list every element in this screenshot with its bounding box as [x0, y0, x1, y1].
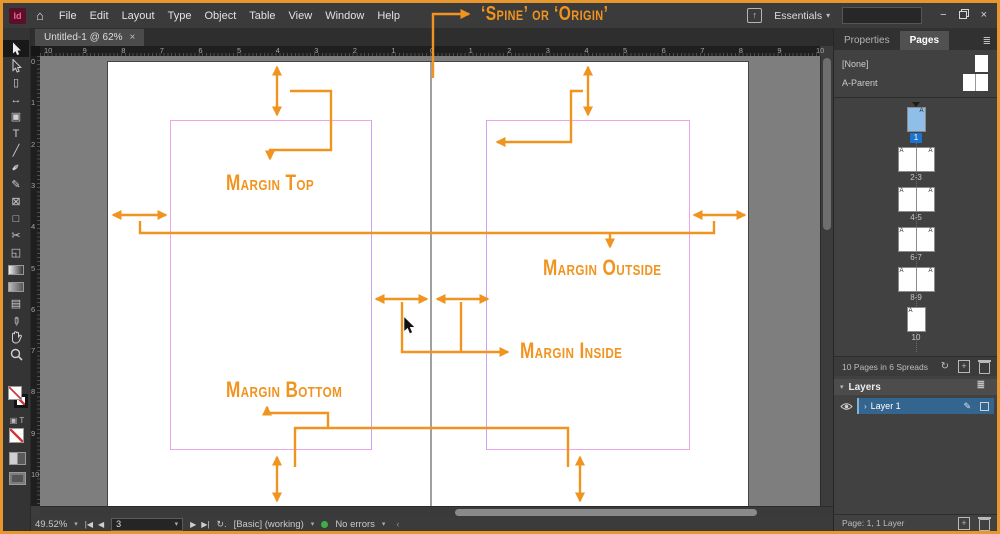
right-inside-column-guide [486, 120, 487, 450]
h-ruler-number: 2 [507, 46, 511, 55]
h-ruler-number: 7 [160, 46, 164, 55]
layer-row[interactable]: › Layer 1 ✎ [834, 397, 998, 415]
panel-dock: Properties Pages ≣ [None] A-Parent A1AA2… [833, 28, 998, 531]
ruler-origin-corner[interactable] [30, 46, 40, 56]
zoom-tool[interactable] [3, 346, 29, 363]
page-label: 1 [910, 133, 922, 143]
new-page-icon[interactable]: + [958, 517, 970, 530]
horizontal-scrollbar-thumb[interactable] [455, 509, 757, 516]
menu-table[interactable]: Table [249, 10, 275, 22]
document-tab[interactable]: Untitled-1 @ 62% × [35, 29, 144, 46]
menu-object[interactable]: Object [204, 10, 236, 22]
h-ruler-number: 8 [739, 46, 743, 55]
apply-color-button[interactable] [9, 452, 26, 465]
free-transform-tool[interactable]: ◱ [3, 244, 29, 261]
layers-panel-header[interactable]: ▾ Layers ≣ [834, 379, 998, 395]
apply-none-swatch[interactable] [9, 428, 24, 443]
h-ruler-number: 1 [391, 46, 395, 55]
status-bar: 49.52% ▾ |◀ ◀ 3 ▾ ▶ ▶| ↻. [Basic] (worki… [3, 517, 833, 531]
indesign-logo-icon[interactable]: Id [9, 8, 26, 24]
panel-bottom-bar: Page: 1, 1 Layer + [834, 514, 998, 531]
vertical-scrollbar-thumb[interactable] [823, 58, 831, 230]
page-thumbnail: A [899, 148, 916, 171]
formatting-affects-toggle[interactable]: ▣T [6, 416, 28, 425]
h-ruler-number: 1 [469, 46, 473, 55]
layer-name: Layer 1 [871, 401, 901, 411]
parent-indicator-icon [912, 102, 920, 107]
close-tab-icon[interactable]: × [130, 32, 136, 43]
h-ruler-number: 5 [623, 46, 627, 55]
rectangle-frame-tool[interactable]: ⊠ [3, 193, 29, 210]
pages-panel-footer: 10 Pages in 6 Spreads ↻ + [834, 356, 998, 376]
page-thumbnail: A [917, 188, 934, 211]
menu-bar: Id ⌂ FileEditLayoutTypeObjectTableViewWi… [3, 3, 997, 28]
chevron-down-icon: ▾ [826, 11, 830, 20]
layer-selected[interactable]: › Layer 1 ✎ [857, 398, 994, 414]
panel-tab-bar: Properties Pages ≣ [834, 28, 998, 50]
v-ruler-number: 8 [31, 387, 35, 396]
workspace-switcher[interactable]: Essentials ▾ [774, 10, 830, 22]
container-icon: ▣ [10, 416, 18, 425]
share-icon[interactable]: ↑ [747, 8, 762, 23]
eye-icon[interactable] [840, 402, 853, 411]
gradient-feather-tool[interactable] [3, 278, 29, 295]
h-ruler-number: 4 [276, 46, 280, 55]
page-number-value: 3 [116, 519, 121, 529]
vertical-ruler[interactable]: 012345678910 [30, 56, 40, 506]
tab-properties[interactable]: Properties [834, 31, 900, 50]
delete-page-icon[interactable] [979, 362, 990, 374]
document-tab-title: Untitled-1 @ 62% [44, 32, 123, 43]
v-ruler-number: 1 [31, 98, 35, 107]
minimize-button[interactable]: − [940, 10, 946, 21]
spread-icon [963, 74, 988, 91]
layers-panel-title: Layers [849, 382, 881, 393]
pages-panel-page-6-7[interactable]: AA6-7 [899, 228, 934, 263]
panel-menu-icon[interactable]: ≣ [983, 36, 991, 50]
h-ruler-number: 6 [662, 46, 666, 55]
h-ruler-number: 2 [353, 46, 357, 55]
page-label: 8-9 [910, 293, 922, 303]
pages-list: A1AA2-3AA4-5AA6-7AA8-9A10 [834, 98, 998, 356]
previous-page-button[interactable]: ◀ [98, 520, 104, 529]
page-thumbnail: A [908, 108, 925, 131]
menu-type[interactable]: Type [168, 10, 192, 22]
v-ruler-number: 0 [31, 57, 35, 66]
type-tool[interactable]: T [3, 125, 29, 142]
expand-layer-icon[interactable]: › [864, 402, 867, 411]
document-canvas[interactable] [40, 56, 820, 506]
screen-mode-button[interactable] [9, 472, 26, 485]
preflight-status-chevron-icon[interactable]: ▾ [382, 520, 386, 528]
direct-selection-tool[interactable] [3, 57, 29, 74]
page-label: 2-3 [910, 173, 922, 183]
last-page-button[interactable]: ▶| [201, 520, 209, 529]
h-ruler-number: 6 [198, 46, 202, 55]
h-ruler-number: 5 [237, 46, 241, 55]
restore-button[interactable] [959, 9, 969, 22]
parent-pages-section: [None] A-Parent [834, 50, 998, 98]
page-info-label: Page: 1, 1 Layer [842, 518, 904, 528]
left-page-margin-guides [170, 120, 372, 450]
zoom-level[interactable]: 49.52% [35, 519, 67, 530]
preflight-status[interactable]: No errors [335, 519, 375, 530]
next-page-button[interactable]: ▶ [190, 520, 196, 529]
layers-menu-icon[interactable]: ≣ [977, 380, 985, 394]
pages-count-label: 10 Pages in 6 Spreads [842, 362, 928, 372]
pages-panel-page-8-9[interactable]: AA8-9 [899, 268, 934, 303]
text-icon: T [19, 416, 24, 425]
gap-tool[interactable]: ↔ [3, 91, 29, 108]
home-icon[interactable]: ⌂ [36, 9, 44, 22]
page-thumbnail: A [917, 148, 934, 171]
page-label: 10 [912, 333, 921, 343]
v-ruler-number: 4 [31, 222, 35, 231]
left-inside-column-guide [371, 120, 372, 450]
vertical-scrollbar[interactable] [820, 56, 834, 506]
close-button[interactable]: × [981, 10, 987, 21]
v-ruler-number: 7 [31, 346, 35, 355]
horizontal-ruler[interactable]: 10987654321012345678910 [40, 46, 820, 56]
scroll-left-icon[interactable]: ‹ [396, 519, 399, 530]
menu-items: FileEditLayoutTypeObjectTableViewWindowH… [59, 10, 400, 22]
tab-pages[interactable]: Pages [900, 31, 949, 50]
delete-icon[interactable] [979, 519, 990, 531]
edit-page-size-icon[interactable]: ↻ [941, 361, 949, 372]
menu-help[interactable]: Help [377, 10, 400, 22]
pages-panel-page-1[interactable]: A1 [908, 102, 925, 143]
no-errors-indicator-icon [321, 521, 328, 528]
v-ruler-number: 2 [31, 140, 35, 149]
spine-line [430, 62, 432, 506]
preflight-profile[interactable]: [Basic] (working) [234, 519, 304, 530]
menu-file[interactable]: File [59, 10, 77, 22]
h-ruler-number: 7 [700, 46, 704, 55]
v-ruler-number: 5 [31, 264, 35, 273]
v-ruler-number: 10 [31, 470, 39, 479]
h-ruler-number: 8 [121, 46, 125, 55]
h-ruler-number: 10 [816, 46, 824, 55]
page-thumbnail: A [917, 268, 934, 291]
rectangle-tool[interactable]: □ [3, 210, 29, 227]
new-spread-icon[interactable]: + [958, 360, 970, 373]
search-input[interactable] [842, 7, 922, 24]
fill-swatch-none[interactable] [8, 386, 22, 400]
h-ruler-number: 10 [44, 46, 52, 55]
h-ruler-number: 3 [314, 46, 318, 55]
menu-edit[interactable]: Edit [90, 10, 109, 22]
h-ruler-number: 9 [83, 46, 87, 55]
tools-panel: ▯↔▣T╱✒✎⊠□✂◱▤✐ ▣T [3, 28, 31, 531]
restore-icon [959, 9, 969, 19]
page-label: 6-7 [910, 253, 922, 263]
h-ruler-number: 3 [546, 46, 550, 55]
menu-bar-right: ↑ Essentials ▾ − × [747, 7, 987, 24]
parent-page-none[interactable]: [None] [834, 54, 998, 73]
collapse-icon[interactable]: ▾ [840, 383, 844, 391]
preflight-profile-chevron-icon[interactable]: ▾ [311, 520, 315, 528]
parent-page-label: [None] [842, 59, 869, 69]
parent-page-a-parent[interactable]: A-Parent [834, 73, 998, 92]
h-ruler-number: 9 [777, 46, 781, 55]
selection-tool[interactable] [3, 40, 29, 57]
pen-edit-icon: ✎ [963, 401, 971, 412]
gradient-swatch-tool[interactable] [3, 261, 29, 278]
menu-view[interactable]: View [289, 10, 313, 22]
page-tool[interactable]: ▯ [3, 74, 29, 91]
pages-panel-page-2-3[interactable]: AA2-3 [899, 148, 934, 183]
layer-selection-square[interactable] [980, 402, 989, 411]
scissors-tool[interactable]: ✂ [3, 227, 29, 244]
single-page-icon [975, 55, 988, 72]
page-thumbnail: A [899, 188, 916, 211]
page-thumbnail: A [917, 228, 934, 251]
pages-panel-page-10[interactable]: A10 [908, 308, 925, 343]
workspace-label: Essentials [774, 10, 822, 22]
page-thumbnail: A [899, 268, 916, 291]
page-thumbnail: A [899, 228, 916, 251]
h-ruler-number: 0 [430, 46, 434, 55]
parent-page-label: A-Parent [842, 78, 878, 88]
menu-window[interactable]: Window [325, 10, 364, 22]
zoom-chevron-icon[interactable]: ▾ [74, 520, 78, 528]
v-ruler-number: 3 [31, 181, 35, 190]
page-thumbnail: A [908, 308, 925, 331]
v-ruler-number: 9 [31, 429, 35, 438]
document-tab-bar: Untitled-1 @ 62% × [30, 28, 833, 46]
preflight-menu-icon[interactable]: ↻. [217, 519, 227, 530]
page-number-field[interactable]: 3 ▾ [111, 518, 183, 531]
first-page-button[interactable]: |◀ [85, 520, 93, 529]
h-ruler-number: 4 [584, 46, 588, 55]
v-ruler-number: 6 [31, 305, 35, 314]
content-collector-tool[interactable]: ▣ [3, 108, 29, 125]
page-dropdown-icon[interactable]: ▾ [175, 520, 179, 528]
menu-layout[interactable]: Layout [122, 10, 155, 22]
right-page-margin-guides [486, 120, 690, 450]
pages-panel-page-4-5[interactable]: AA4-5 [899, 188, 934, 223]
page-label: 4-5 [910, 213, 922, 223]
